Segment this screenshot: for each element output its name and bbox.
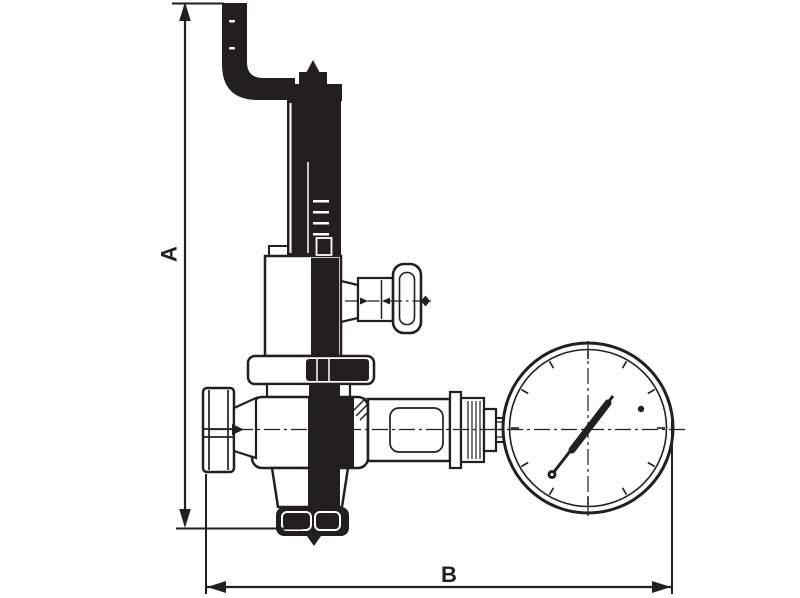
dial-screw — [638, 406, 644, 412]
dim-a-arrow-down — [179, 509, 191, 528]
thread-dash — [313, 211, 329, 214]
body-neck — [267, 384, 350, 397]
valve-body — [252, 397, 374, 507]
wheel-rim — [393, 264, 421, 333]
screw-tip — [306, 60, 320, 73]
body-shade — [308, 398, 354, 467]
dim-a-arrow-up — [179, 2, 191, 21]
dim-b-label: B — [441, 562, 457, 587]
lock-nut — [299, 72, 327, 85]
drawing-svg: A B — [0, 0, 800, 598]
needle-counterweight-hole — [551, 473, 554, 476]
thread-dash — [313, 222, 329, 225]
flange-shade — [306, 359, 369, 381]
outlet-tip — [307, 536, 321, 546]
thread-dash — [313, 233, 329, 236]
nut-block — [288, 84, 342, 101]
housing-shade-band — [311, 258, 339, 355]
outlet-connection — [276, 507, 349, 546]
thread-dash — [313, 200, 329, 203]
dim-b-arrow-right — [652, 581, 671, 593]
neck-shade — [309, 385, 340, 396]
valve-technical-drawing: A B — [0, 0, 800, 598]
adjusting-screw — [288, 60, 342, 101]
spring-column — [287, 100, 341, 257]
housing-flange — [248, 356, 374, 384]
valve-assembly — [203, 3, 686, 546]
test-handwheel — [341, 264, 432, 333]
dim-a-label: A — [157, 246, 182, 262]
lever-handle — [222, 3, 295, 100]
handle-tube — [222, 3, 295, 100]
lower-neck-shade — [308, 468, 340, 507]
handle-nib — [229, 47, 235, 50]
dim-b-arrow-left — [207, 581, 226, 593]
spring-housing — [265, 246, 341, 356]
handle-nib — [229, 20, 235, 23]
